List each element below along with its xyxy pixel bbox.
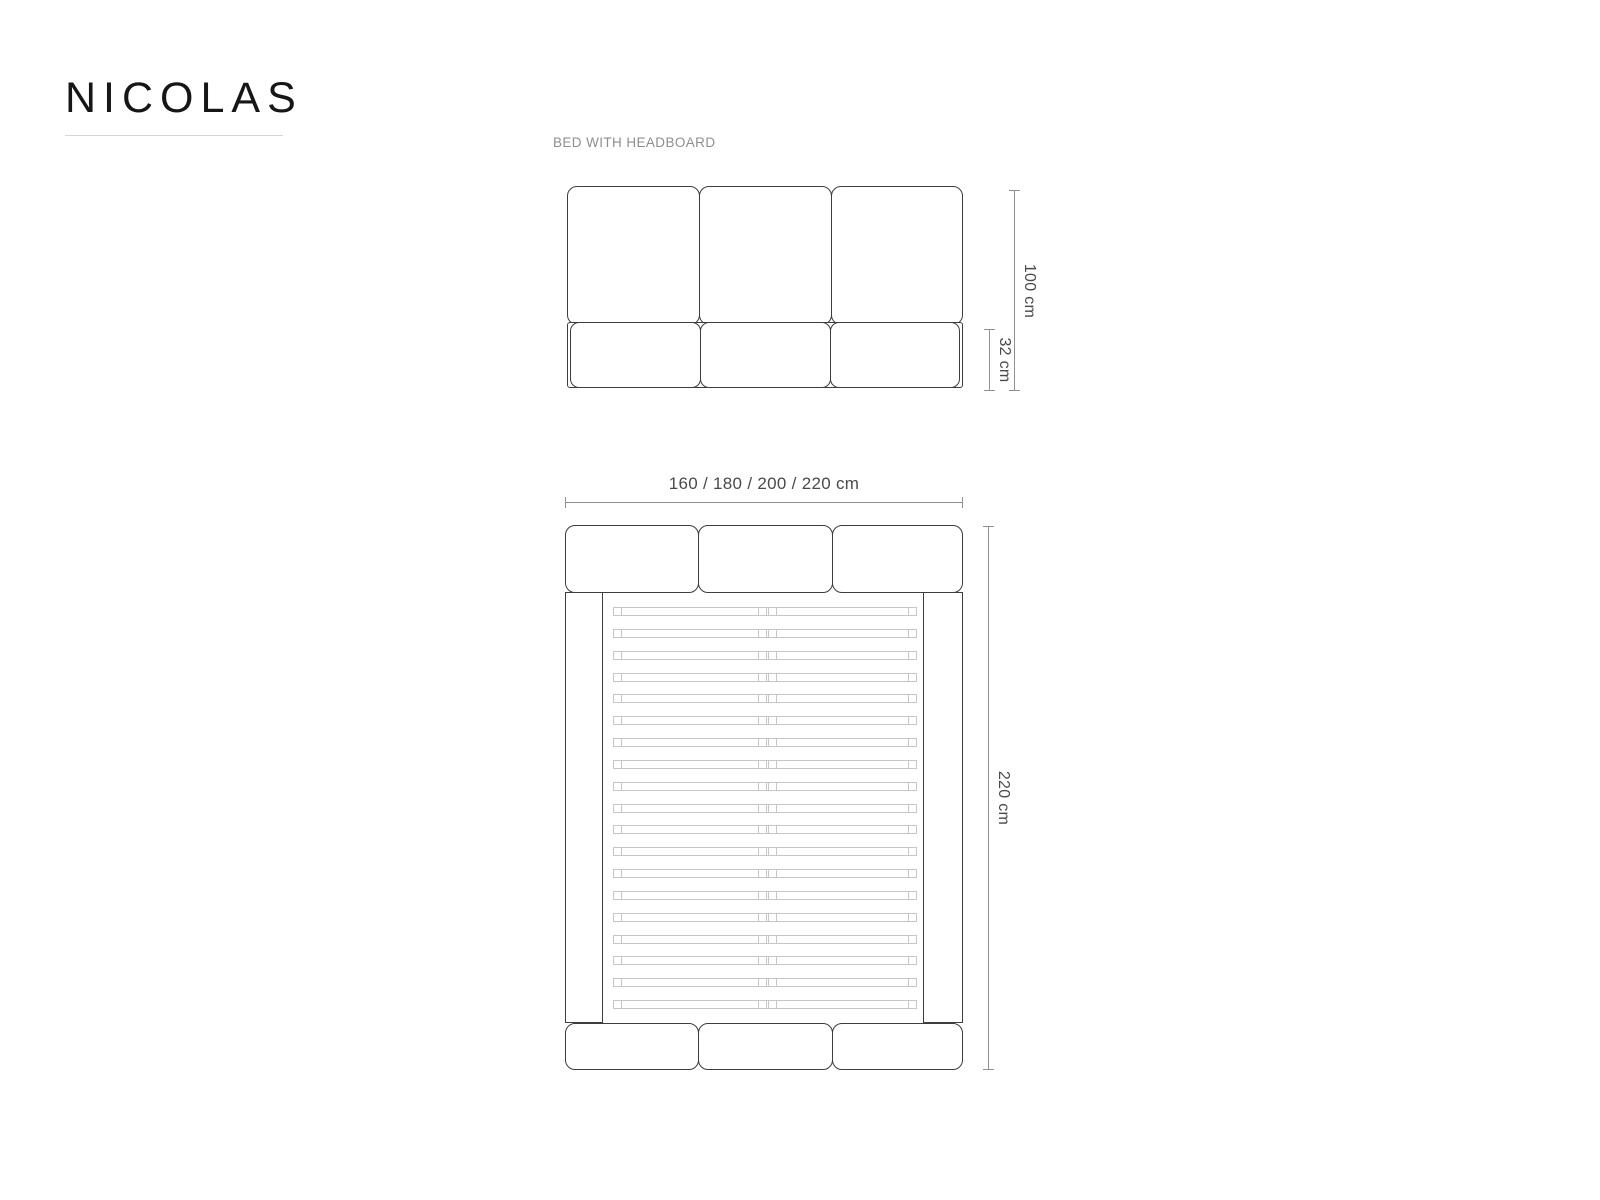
slat-holder <box>758 1000 767 1009</box>
slat-holder <box>768 869 777 878</box>
slat-holder <box>613 956 622 965</box>
bed-slat <box>613 935 917 944</box>
bed-slat <box>613 1000 917 1009</box>
dimension-tick <box>984 390 995 391</box>
bed-slat <box>613 847 917 856</box>
slat-holder <box>768 716 777 725</box>
brand-logo: NICOLAS <box>65 74 303 123</box>
slat-holder <box>768 956 777 965</box>
slat-holder <box>613 847 622 856</box>
bed-slat <box>613 869 917 878</box>
slat-holder <box>908 804 917 813</box>
slat-holder <box>613 782 622 791</box>
slat-holder <box>768 694 777 703</box>
dimension-tick <box>983 526 994 527</box>
slat-holder <box>768 607 777 616</box>
slat-holder <box>908 694 917 703</box>
slat-holder <box>768 891 777 900</box>
slat-holder <box>908 738 917 747</box>
slat-holder <box>758 760 767 769</box>
dimension-line <box>989 329 990 391</box>
slat-holder <box>908 782 917 791</box>
slat-holder <box>908 869 917 878</box>
dimension-line <box>565 502 963 503</box>
top-side-rail-right <box>923 592 963 1023</box>
bed-slat <box>613 607 917 616</box>
top-headboard-cushion-right <box>832 525 963 593</box>
slat-holder <box>908 978 917 987</box>
slat-holder <box>908 629 917 638</box>
slat-holder <box>768 673 777 682</box>
front-headboard-panel-center <box>699 186 832 325</box>
slat-holder <box>758 694 767 703</box>
dimension-base-height: 32 cm <box>989 329 990 391</box>
top-footboard-cushion-center <box>698 1023 833 1070</box>
slat-holder <box>758 869 767 878</box>
slat-holder <box>908 651 917 660</box>
dimension-tick <box>984 329 995 330</box>
slat-holder <box>613 869 622 878</box>
slat-holder <box>908 760 917 769</box>
slat-holder <box>908 935 917 944</box>
slat-holder <box>613 804 622 813</box>
slat-holder <box>613 825 622 834</box>
view-type-label: BED WITH HEADBOARD <box>553 135 715 150</box>
top-headboard-cushion-left <box>565 525 699 593</box>
slat-holder <box>613 935 622 944</box>
slat-holder <box>908 891 917 900</box>
slat-holder <box>758 935 767 944</box>
top-footboard-cushion-left <box>565 1023 699 1070</box>
bed-slat <box>613 760 917 769</box>
slat-holder <box>613 760 622 769</box>
top-footboard-cushion-right <box>832 1023 963 1070</box>
top-side-rail-left <box>565 592 603 1023</box>
bed-slat <box>613 804 917 813</box>
slat-holder <box>613 716 622 725</box>
slat-holder <box>758 651 767 660</box>
front-base-cushion-center <box>700 322 831 388</box>
brand-underline <box>65 135 283 136</box>
slat-holder <box>768 978 777 987</box>
dimension-tick <box>983 1069 994 1070</box>
slat-holder <box>613 738 622 747</box>
slat-holder <box>768 847 777 856</box>
slat-holder <box>768 782 777 791</box>
bed-slat <box>613 694 917 703</box>
slat-holder <box>768 760 777 769</box>
slat-holder <box>613 978 622 987</box>
front-base-cushion-left <box>570 322 701 388</box>
dimension-label: 32 cm <box>995 337 1013 382</box>
slat-holder <box>758 738 767 747</box>
top-headboard-cushion-center <box>698 525 833 593</box>
bed-dimension-diagram: NICOLAS BED WITH HEADBOARD 32 cm 100 cm … <box>0 0 1600 1200</box>
slat-holder <box>758 673 767 682</box>
slat-holder <box>768 651 777 660</box>
slat-holder <box>613 673 622 682</box>
slat-holder <box>768 629 777 638</box>
slat-holder <box>613 1000 622 1009</box>
dimension-line <box>988 526 989 1070</box>
slat-holder <box>768 935 777 944</box>
bed-slat <box>613 891 917 900</box>
dimension-line <box>1014 190 1015 391</box>
slat-holder <box>908 673 917 682</box>
slat-holder <box>613 651 622 660</box>
slat-holder <box>758 629 767 638</box>
bed-slat <box>613 956 917 965</box>
slat-holder <box>768 1000 777 1009</box>
dimension-tick <box>565 497 566 508</box>
slat-holder <box>758 956 767 965</box>
slat-holder <box>758 847 767 856</box>
dimension-tick <box>962 497 963 508</box>
slat-holder <box>768 804 777 813</box>
bed-slat <box>613 673 917 682</box>
slat-holder <box>908 825 917 834</box>
slat-holder <box>613 607 622 616</box>
bed-slat <box>613 782 917 791</box>
bed-slat <box>613 651 917 660</box>
bed-slat <box>613 825 917 834</box>
dimension-tick <box>1009 390 1020 391</box>
dimension-tick <box>1009 190 1020 191</box>
slat-holder <box>908 1000 917 1009</box>
slat-holder <box>908 956 917 965</box>
slat-holder <box>758 804 767 813</box>
dimension-bed-length: 220 cm <box>988 526 989 1070</box>
dimension-bed-width: 160 / 180 / 200 / 220 cm <box>565 502 963 503</box>
front-headboard-panel-left <box>567 186 700 325</box>
slat-holder <box>908 716 917 725</box>
slat-holder <box>758 825 767 834</box>
dimension-label: 160 / 180 / 200 / 220 cm <box>669 474 860 494</box>
slat-holder <box>768 825 777 834</box>
slat-holder <box>768 738 777 747</box>
front-headboard-panel-right <box>831 186 963 325</box>
slat-holder <box>908 913 917 922</box>
slat-area <box>613 607 917 1009</box>
slat-holder <box>758 978 767 987</box>
slat-holder <box>613 913 622 922</box>
slat-holder <box>758 782 767 791</box>
slat-holder <box>908 847 917 856</box>
slat-holder <box>758 716 767 725</box>
bed-slat <box>613 913 917 922</box>
slat-holder <box>613 891 622 900</box>
slat-holder <box>908 607 917 616</box>
dimension-headboard-height: 100 cm <box>1014 190 1015 391</box>
slat-holder <box>758 607 767 616</box>
front-base-cushion-right <box>830 322 960 388</box>
slat-holder <box>613 629 622 638</box>
slat-holder <box>613 694 622 703</box>
slat-holder <box>758 891 767 900</box>
slat-holder <box>768 913 777 922</box>
slat-holder <box>758 913 767 922</box>
dimension-label: 220 cm <box>994 771 1012 825</box>
dimension-label: 100 cm <box>1020 263 1038 317</box>
bed-slat <box>613 629 917 638</box>
bed-slat <box>613 716 917 725</box>
bed-slat <box>613 738 917 747</box>
bed-slat <box>613 978 917 987</box>
